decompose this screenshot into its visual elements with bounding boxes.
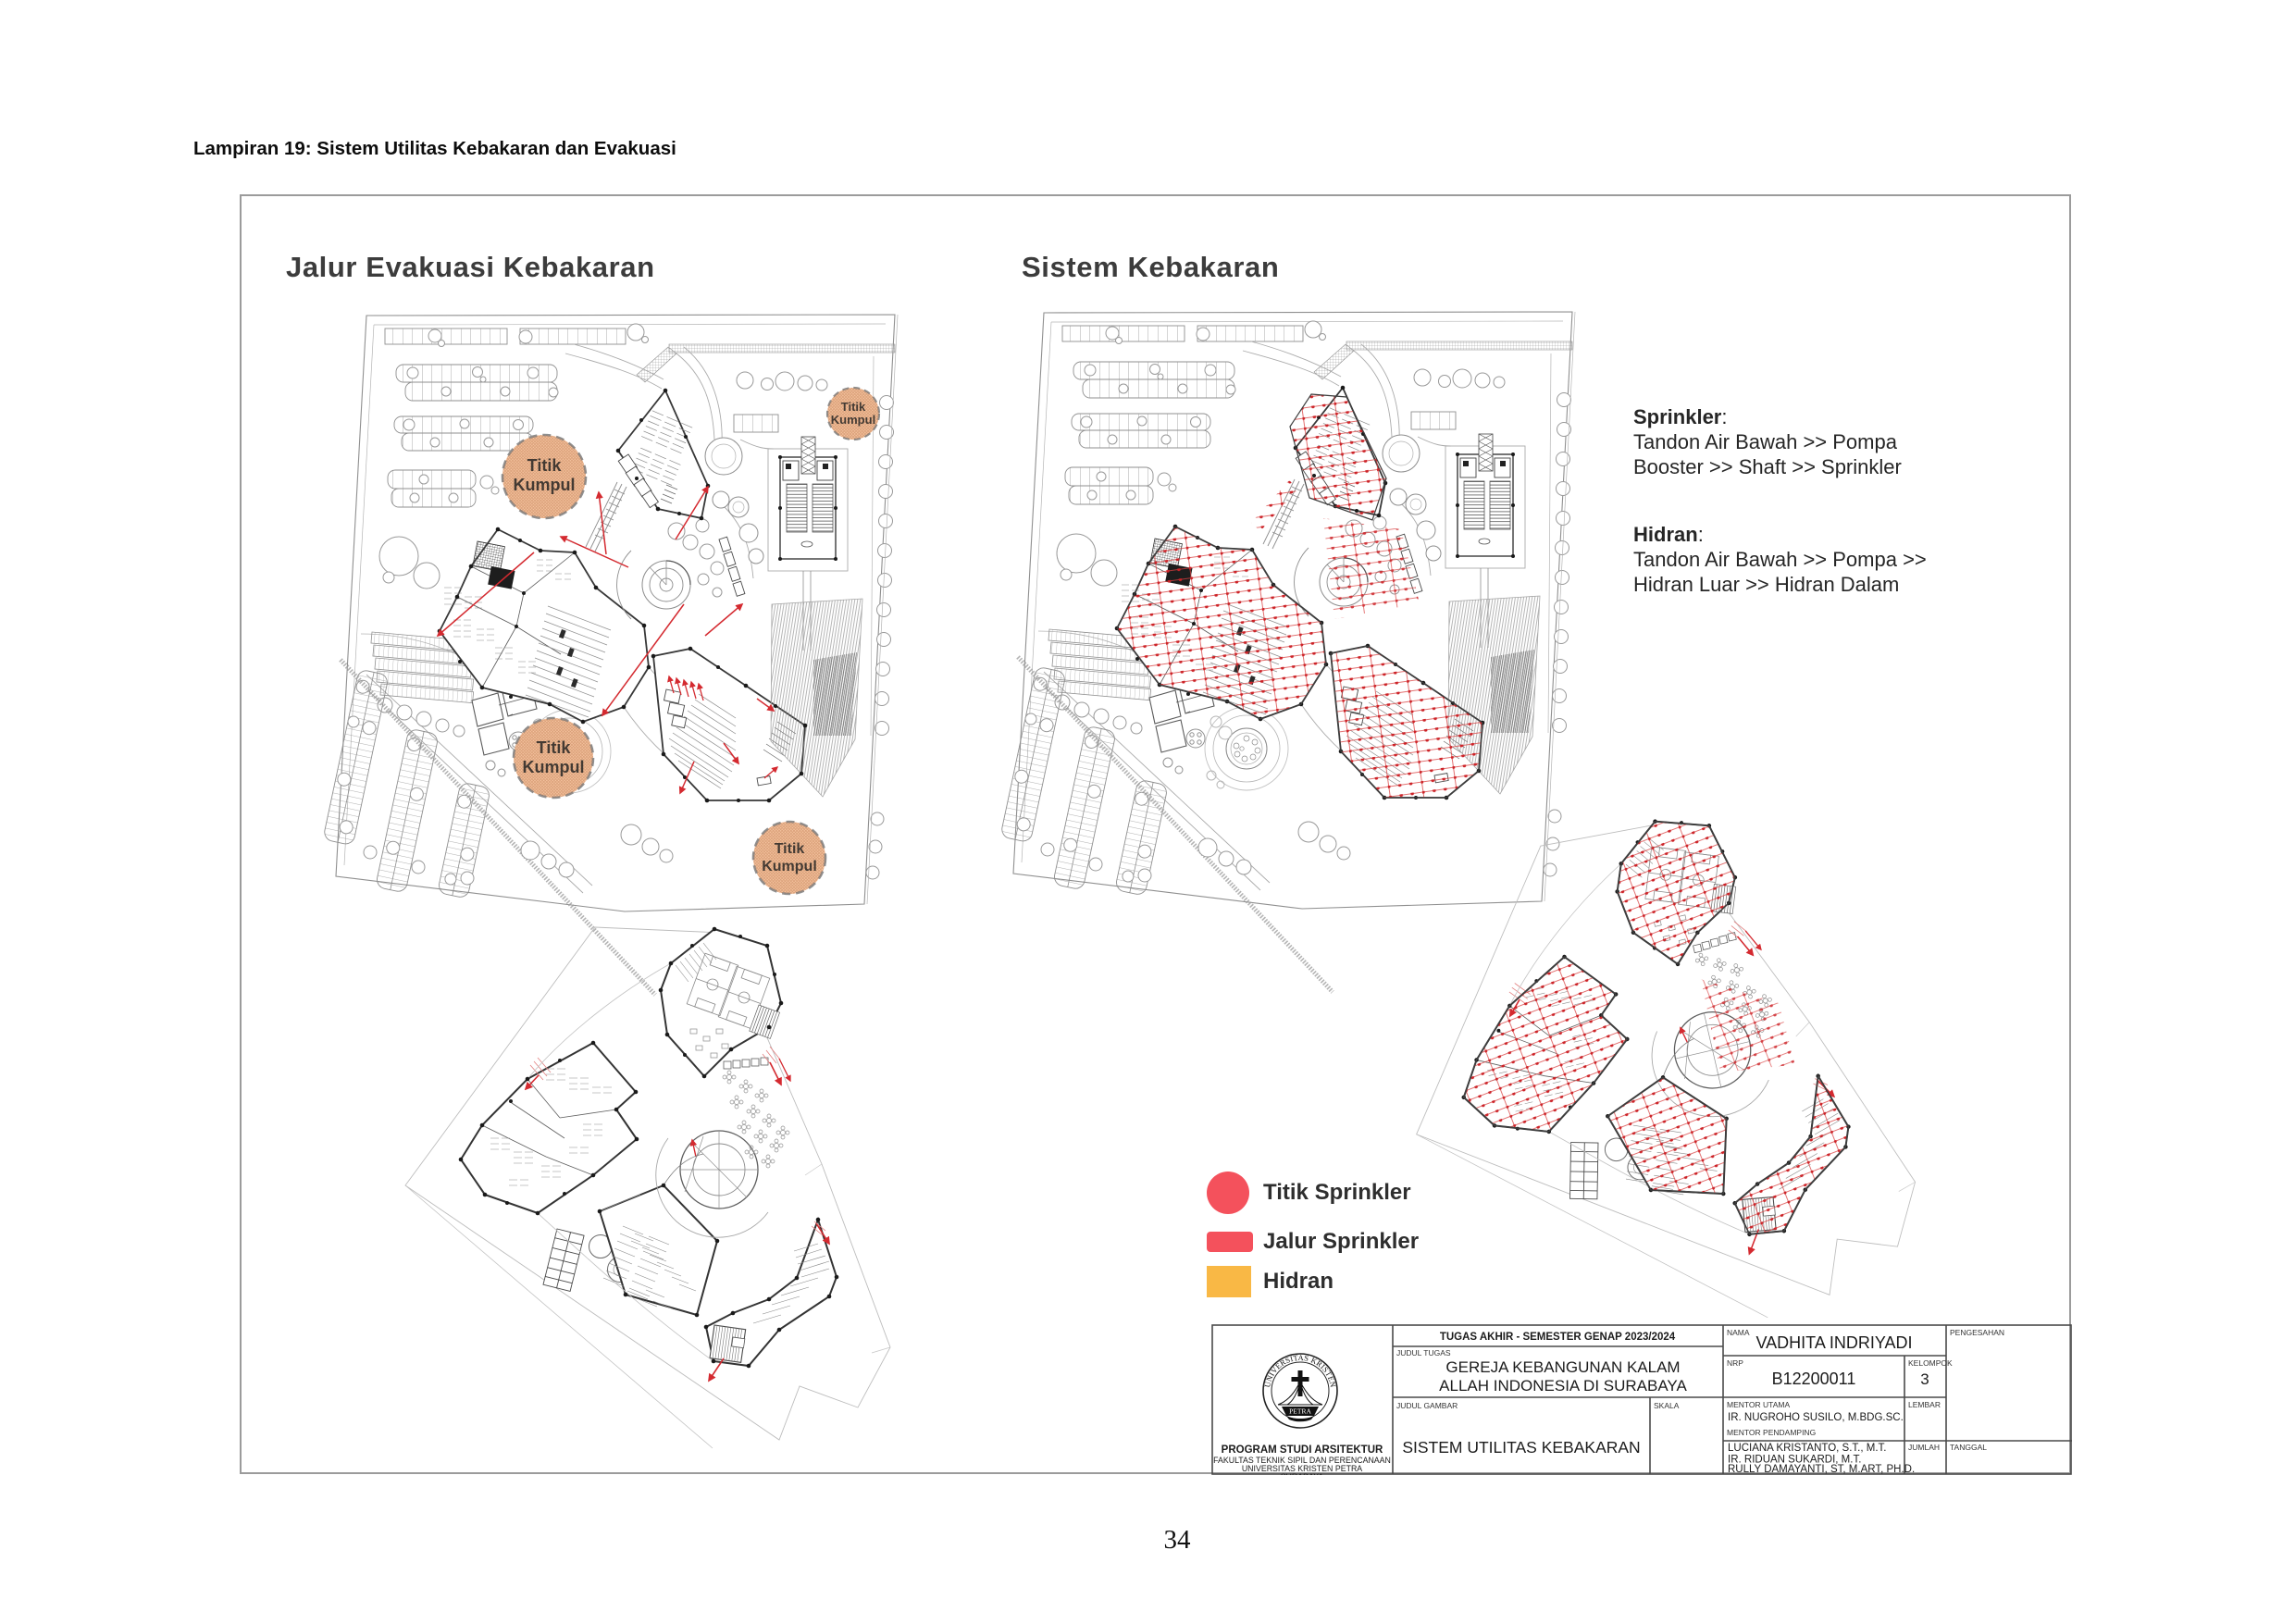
svg-text:PETRA: PETRA <box>1289 1407 1311 1416</box>
svg-text:Kumpul: Kumpul <box>523 758 585 776</box>
svg-text:Kumpul: Kumpul <box>831 413 875 427</box>
svg-text:ALLAH INDONESIA DI SURABAYA: ALLAH INDONESIA DI SURABAYA <box>1439 1377 1687 1395</box>
svg-text:Titik: Titik <box>775 841 805 857</box>
svg-text:Titik: Titik <box>527 456 563 475</box>
svg-text:Kumpul: Kumpul <box>514 476 576 494</box>
svg-text:KELOMPOK: KELOMPOK <box>1908 1358 1953 1368</box>
svg-text:VADHITA INDRIYADI: VADHITA INDRIYADI <box>1755 1333 1912 1352</box>
svg-text:Titik: Titik <box>841 400 866 414</box>
svg-text:SKALA: SKALA <box>1654 1401 1680 1410</box>
svg-text:RULLY DAMAYANTI, ST, M.ART, PH: RULLY DAMAYANTI, ST, M.ART, PH.D. <box>1728 1464 1915 1475</box>
svg-text:MENTOR PENDAMPING: MENTOR PENDAMPING <box>1727 1428 1816 1437</box>
svg-text:TANGGAL: TANGGAL <box>1950 1443 1987 1452</box>
svg-text:JUDUL TUGAS: JUDUL TUGAS <box>1396 1348 1451 1357</box>
svg-text:MENTOR UTAMA: MENTOR UTAMA <box>1727 1400 1790 1409</box>
svg-text:Titik: Titik <box>537 738 572 757</box>
svg-text:IR. NUGROHO SUSILO, M.BDG.SC.: IR. NUGROHO SUSILO, M.BDG.SC. <box>1728 1412 1904 1423</box>
svg-text:PENGESAHAN: PENGESAHAN <box>1950 1328 2004 1337</box>
svg-text:PROGRAM STUDI ARSITEKTUR: PROGRAM STUDI ARSITEKTUR <box>1222 1444 1383 1456</box>
svg-text:JUMLAH: JUMLAH <box>1908 1443 1940 1452</box>
svg-text:LUCIANA KRISTANTO, S.T., M.T.: LUCIANA KRISTANTO, S.T., M.T. <box>1728 1443 1886 1454</box>
svg-text:Kumpul: Kumpul <box>762 859 817 874</box>
svg-text:JUDUL GAMBAR: JUDUL GAMBAR <box>1396 1401 1458 1410</box>
svg-text:3: 3 <box>1920 1370 1929 1388</box>
svg-text:SURABAYA: SURABAYA <box>1281 1472 1324 1475</box>
svg-text:TUGAS AKHIR - SEMESTER GENAP 2: TUGAS AKHIR - SEMESTER GENAP 2023/2024 <box>1440 1332 1676 1343</box>
svg-text:NRP: NRP <box>1727 1358 1743 1368</box>
svg-text:LEMBAR: LEMBAR <box>1908 1400 1941 1409</box>
svg-text:SISTEM UTILITAS KEBAKARAN: SISTEM UTILITAS KEBAKARAN <box>1402 1438 1640 1457</box>
svg-text:B12200011: B12200011 <box>1772 1370 1856 1388</box>
svg-text:GEREJA KEBANGUNAN KALAM: GEREJA KEBANGUNAN KALAM <box>1445 1358 1680 1376</box>
